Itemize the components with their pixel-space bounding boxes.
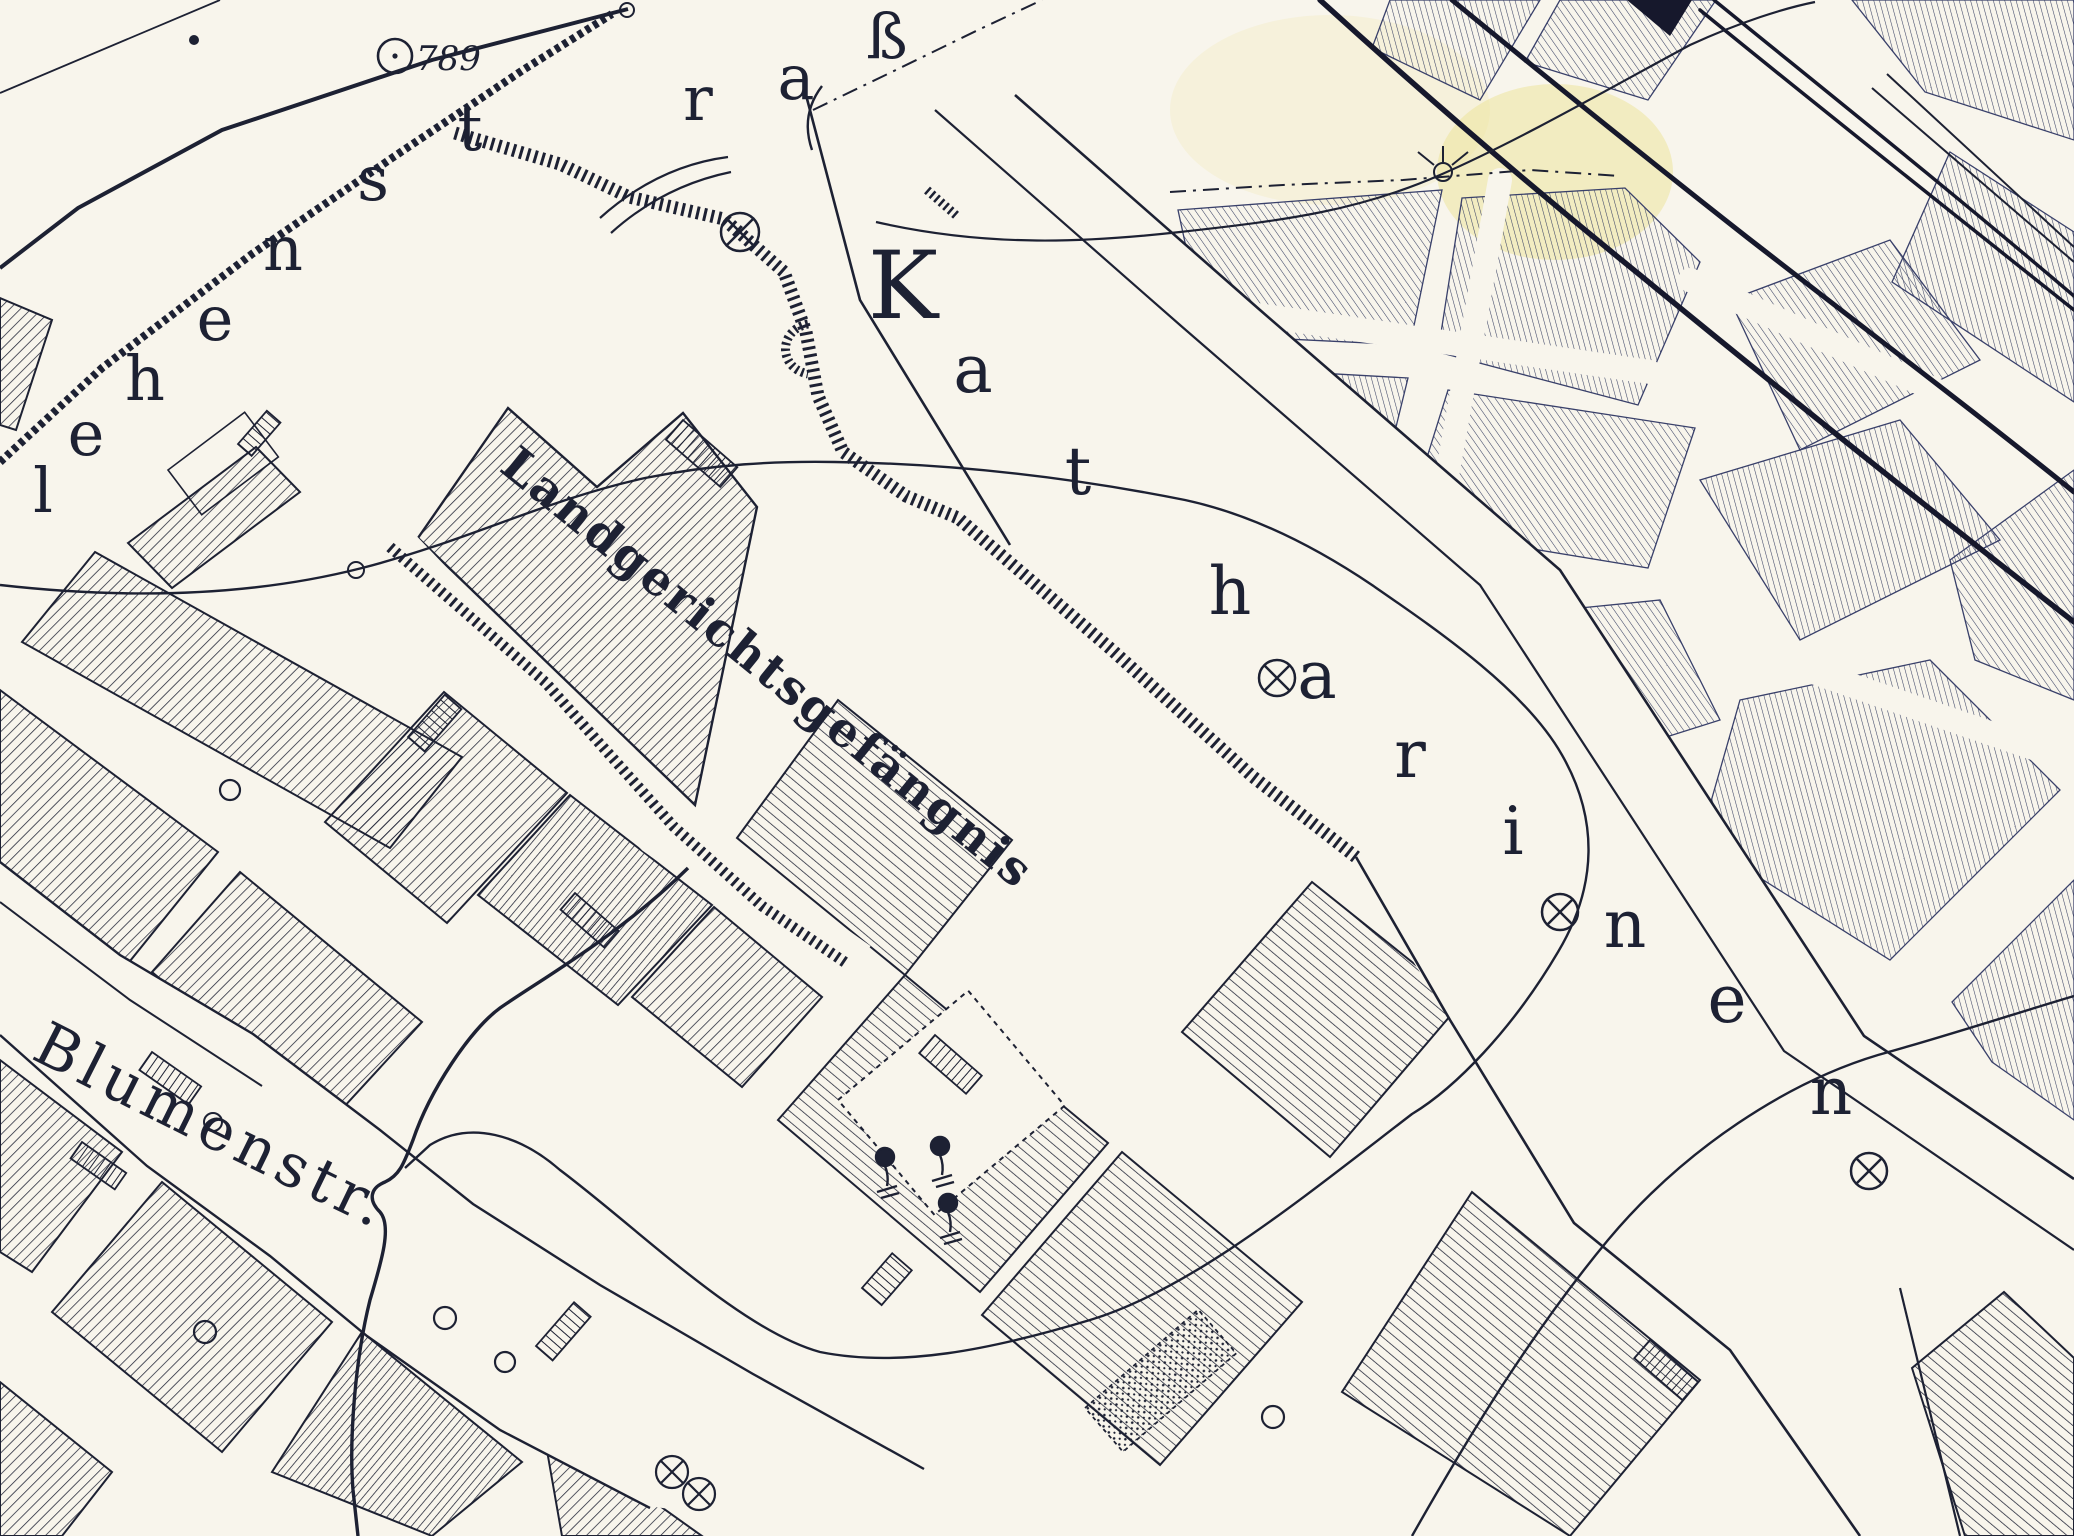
street-letter-katharinen-4: a [1297, 637, 1336, 714]
street-letter-katharinen-7: n [1604, 886, 1647, 963]
street-letter-lehen-5: s [357, 142, 389, 215]
boundary-node-dot [189, 35, 199, 45]
street-letter-katharinen-1: a [953, 331, 992, 408]
street-letter-katharinen-3: h [1209, 553, 1252, 630]
street-letter-lehen-7: r [683, 62, 713, 135]
street-letter-lehen-1: e [68, 397, 105, 470]
street-letter-katharinen-8: e [1707, 961, 1746, 1038]
street-letter-lehen-3: e [197, 282, 234, 355]
street-letter-katharinen-0: K [868, 232, 940, 341]
elevation-label: 789 [416, 39, 481, 79]
street-letter-katharinen-5: r [1394, 716, 1426, 793]
street-letter-lehen-6: t [458, 92, 483, 165]
street-letter-lehen-4: n [263, 212, 303, 285]
city-map: K a t h a r i n e n l e h e n s t r a ß [0, 0, 2074, 1536]
map-canvas: K a t h a r i n e n l e h e n s t r a ß [0, 0, 2074, 1536]
street-letter-katharinen-9: n [1810, 1053, 1853, 1130]
street-letter-lehen-8: a [778, 41, 815, 114]
street-letter-lehen-2: h [125, 342, 165, 415]
street-letter-katharinen-6: i [1502, 793, 1523, 870]
street-letter-lehen-0: l [33, 454, 53, 527]
street-letter-lehen-9: ß [866, 0, 907, 73]
street-letter-katharinen-2: t [1065, 433, 1092, 510]
